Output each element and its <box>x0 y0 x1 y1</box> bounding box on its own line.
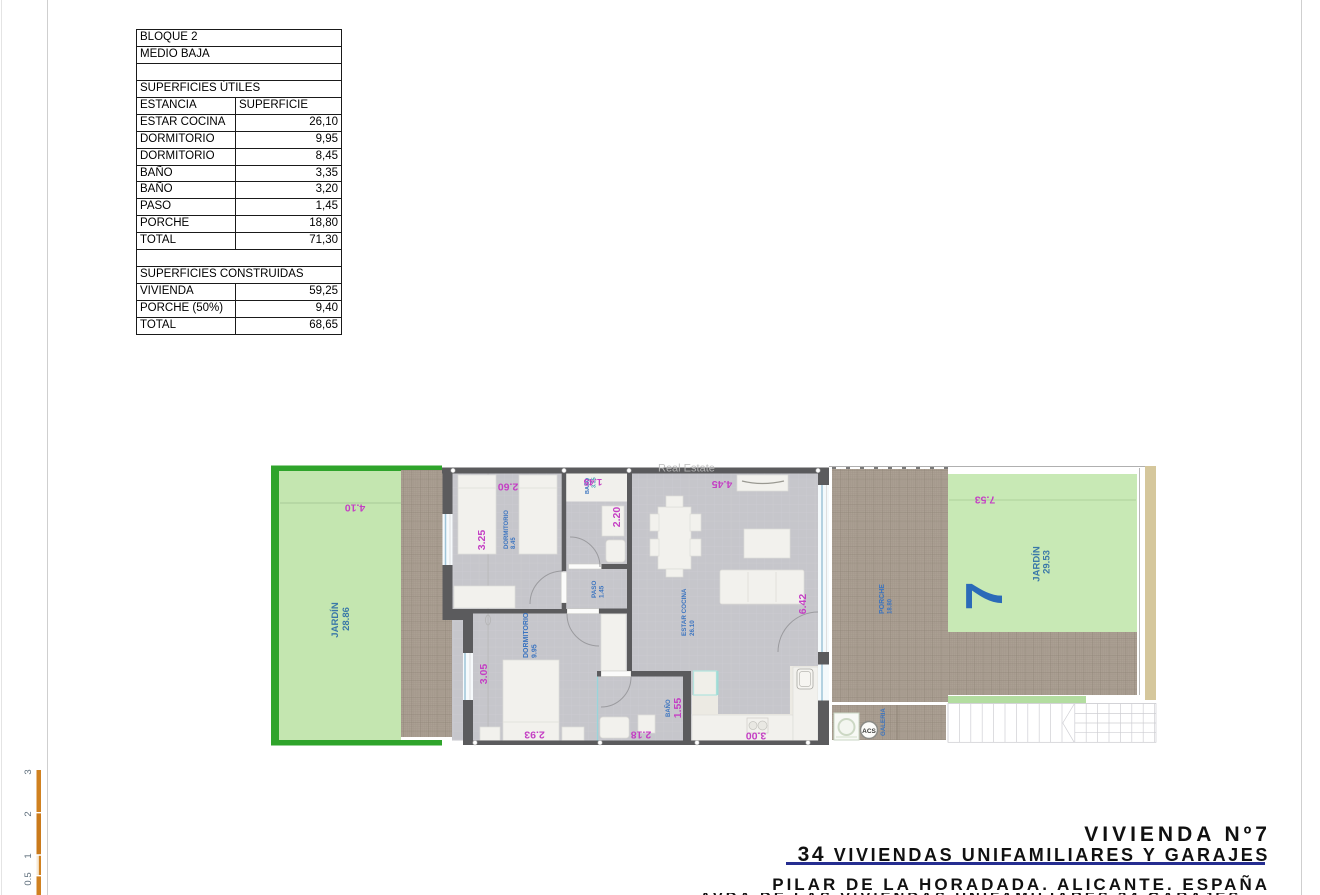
svg-text:1: 1 <box>23 853 34 858</box>
svg-text:2.20: 2.20 <box>611 507 623 528</box>
svg-text:6.42: 6.42 <box>797 594 809 615</box>
svg-text:PORCHE: PORCHE <box>879 584 886 614</box>
svg-text:PASO: PASO <box>591 581 598 598</box>
svg-text:7: 7 <box>956 582 1014 611</box>
svg-text:2.18: 2.18 <box>631 729 652 741</box>
svg-text:0.5: 0.5 <box>23 872 34 885</box>
svg-text:1.55: 1.55 <box>672 698 684 719</box>
svg-text:ACS: ACS <box>862 728 876 735</box>
svg-text:Real Estate: Real Estate <box>658 463 715 475</box>
svg-text:28.86: 28.86 <box>341 607 352 631</box>
svg-text:3.05: 3.05 <box>478 664 490 685</box>
svg-text:4.45: 4.45 <box>712 478 733 490</box>
svg-text:1.45: 1.45 <box>583 476 602 487</box>
svg-text:2.93: 2.93 <box>524 729 545 741</box>
svg-text:8.45: 8.45 <box>511 537 517 549</box>
svg-text:2.60: 2.60 <box>498 481 519 493</box>
svg-text:26.10: 26.10 <box>689 620 696 636</box>
svg-text:9.95: 9.95 <box>532 644 539 658</box>
svg-text:BAÑO: BAÑO <box>665 699 672 717</box>
svg-text:DORMITORIO: DORMITORIO <box>504 510 510 549</box>
svg-text:JARDÍN: JARDÍN <box>330 602 341 638</box>
svg-text:DORMITORIO: DORMITORIO <box>523 612 530 658</box>
svg-text:4.10: 4.10 <box>345 502 366 514</box>
svg-text:3.25: 3.25 <box>476 530 488 551</box>
svg-text:2: 2 <box>23 811 34 816</box>
svg-text:ESTAR COCINA: ESTAR COCINA <box>681 588 688 636</box>
svg-text:7.53: 7.53 <box>975 494 996 506</box>
svg-text:1.45: 1.45 <box>599 585 606 598</box>
svg-text:GALERIA: GALERIA <box>880 708 887 736</box>
svg-text:29.53: 29.53 <box>1042 550 1053 574</box>
svg-text:3.00: 3.00 <box>746 730 767 742</box>
svg-text:3: 3 <box>23 769 34 774</box>
svg-text:18.80: 18.80 <box>888 598 894 614</box>
